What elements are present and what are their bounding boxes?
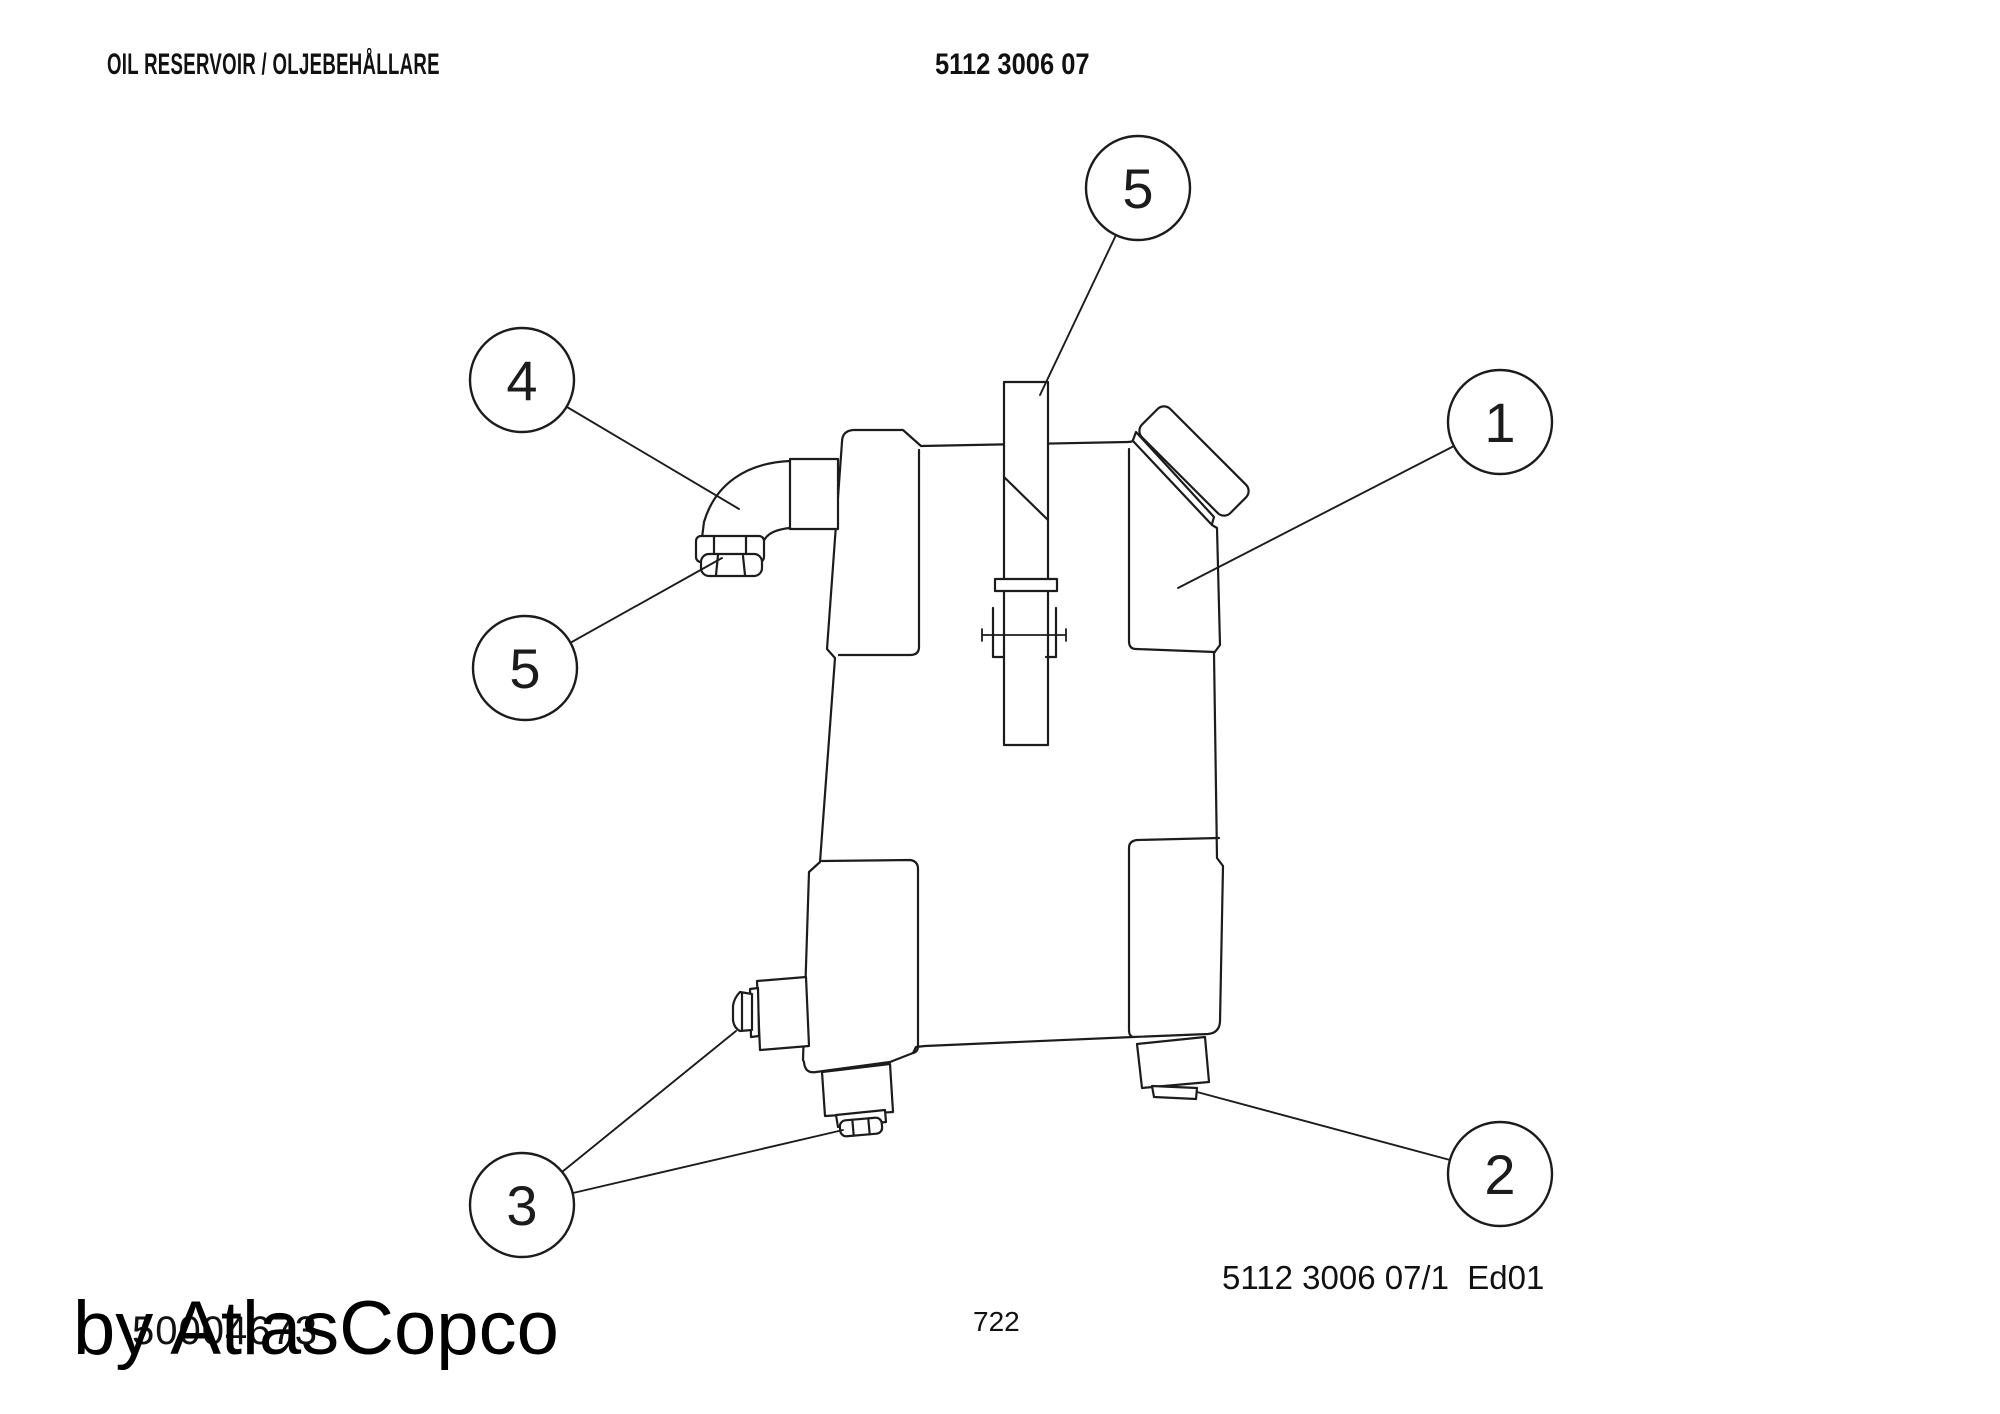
callout-number: 3 — [506, 1174, 537, 1237]
callout-number: 5 — [1122, 157, 1153, 220]
callout-4: 4 — [470, 328, 574, 432]
callout-number: 1 — [1484, 391, 1515, 454]
sight-tube — [1004, 382, 1048, 745]
callout-number: 5 — [509, 637, 540, 700]
leader-line-3b — [573, 1130, 843, 1193]
elbow-stub — [790, 459, 838, 529]
elbow-curve-inner — [762, 528, 790, 546]
callout-1: 1 — [1448, 370, 1552, 474]
outlet-body — [1137, 1037, 1209, 1088]
reservoir-diagram: 5 4 1 5 3 2 — [0, 0, 2000, 1414]
side-plug-block — [757, 977, 809, 1050]
leader-line-4 — [567, 407, 739, 509]
callout-5-left: 5 — [473, 616, 577, 720]
bottom-drain-nut — [839, 1117, 882, 1137]
parts-catalog-page: OIL RESERVOIR / OLJEBEHÅLLARE 5112 3006 … — [0, 0, 2000, 1414]
leader-line-3a — [562, 1031, 736, 1172]
callout-3: 3 — [470, 1153, 574, 1257]
leader-line-5-top — [1040, 235, 1116, 395]
callout-2: 2 — [1448, 1122, 1552, 1226]
callout-number: 4 — [506, 349, 537, 412]
atlascopco-watermark: by AtlasCopco — [73, 1291, 559, 1367]
outlet-foot — [1152, 1086, 1197, 1099]
callout-5-top: 5 — [1086, 136, 1190, 240]
leader-line-5-left — [570, 558, 722, 643]
tube-clamp-band — [995, 579, 1057, 591]
leader-line-2 — [1197, 1092, 1450, 1160]
bottom-drain-body — [822, 1064, 893, 1116]
callout-number: 2 — [1484, 1143, 1515, 1206]
elbow-curve-outer — [702, 461, 790, 538]
